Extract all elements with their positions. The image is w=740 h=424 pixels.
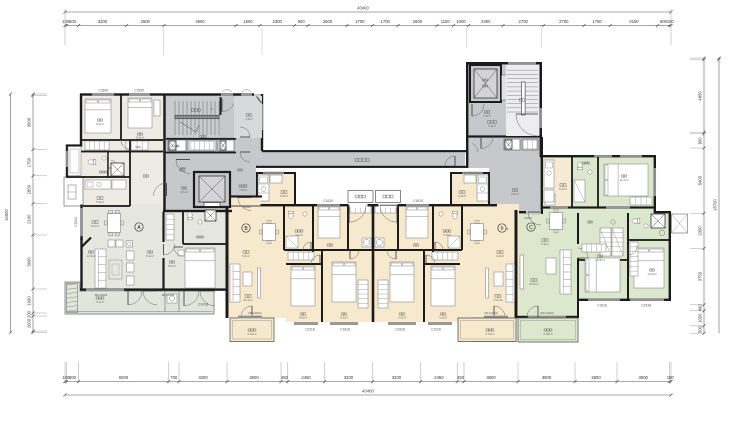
svg-text:8.9m²: 8.9m² [136, 136, 144, 140]
svg-text:1750: 1750 [592, 19, 602, 24]
svg-text:500: 500 [698, 325, 703, 333]
svg-text:3200: 3200 [198, 375, 208, 380]
svg-text:C1818: C1818 [597, 304, 607, 308]
svg-text:12.9m²: 12.9m² [647, 272, 656, 276]
svg-text:5.4m²: 5.4m² [559, 187, 567, 191]
svg-text:9.2m²: 9.2m² [511, 192, 519, 196]
svg-text:9.0m²: 9.0m² [299, 316, 307, 320]
svg-text:2.72m²: 2.72m² [485, 332, 494, 336]
svg-text:6.4m²: 6.4m² [541, 242, 549, 246]
svg-text:1.3m²: 1.3m² [483, 114, 491, 118]
svg-text:MLC2404: MLC2404 [95, 293, 108, 297]
svg-text:11.2m²: 11.2m² [619, 178, 628, 182]
svg-text:MLC2424: MLC2424 [248, 311, 261, 315]
svg-text:5.1m²: 5.1m² [96, 300, 104, 304]
svg-text:1000: 1000 [456, 19, 466, 24]
svg-text:C: C [529, 225, 533, 231]
svg-text:1100: 1100 [441, 19, 451, 24]
svg-text:C2418: C2418 [198, 303, 208, 307]
svg-text:6.4m²: 6.4m² [242, 254, 250, 258]
svg-text:C2404: C2404 [74, 217, 78, 227]
svg-text:4800: 4800 [195, 19, 205, 24]
svg-text:3200: 3200 [392, 375, 402, 380]
svg-text:3200: 3200 [98, 19, 108, 24]
svg-text:5.9m²: 5.9m² [280, 194, 288, 198]
svg-text:6000: 6000 [119, 375, 129, 380]
svg-text:12.9m²: 12.9m² [86, 254, 95, 258]
svg-text:1750: 1750 [27, 157, 32, 167]
svg-text:2700: 2700 [519, 19, 529, 24]
svg-text:6.4m²: 6.4m² [91, 224, 99, 228]
svg-text:21.6m²: 21.6m² [243, 298, 252, 302]
svg-text:3600: 3600 [27, 257, 32, 267]
svg-text:8.2m²: 8.2m² [146, 254, 154, 258]
svg-text:B: B [500, 226, 503, 231]
svg-text:3150: 3150 [629, 19, 639, 24]
svg-text:450: 450 [281, 375, 289, 380]
svg-text:MLC2404: MLC2404 [162, 293, 175, 297]
svg-text:9.0m²: 9.0m² [439, 316, 447, 320]
svg-text:1700: 1700 [381, 19, 391, 24]
svg-text:4.6m²: 4.6m² [245, 117, 253, 121]
svg-text:400: 400 [698, 304, 703, 312]
svg-text:2.19m²: 2.19m² [247, 332, 256, 336]
svg-text:3600: 3600 [249, 375, 259, 380]
svg-text:1600: 1600 [243, 19, 253, 24]
svg-text:2.45m²: 2.45m² [543, 332, 552, 336]
svg-text:F: F [211, 107, 213, 111]
svg-text:C1818: C1818 [395, 328, 405, 332]
svg-text:C2118: C2118 [305, 328, 315, 332]
svg-text:100: 100 [667, 375, 675, 380]
svg-text:7.5m²: 7.5m² [239, 188, 247, 192]
svg-text:1000: 1000 [698, 313, 703, 323]
svg-text:2300: 2300 [273, 19, 283, 24]
svg-text:C1615: C1615 [413, 199, 423, 203]
svg-text:1700: 1700 [355, 19, 365, 24]
svg-text:2300: 2300 [481, 19, 491, 24]
svg-text:3750: 3750 [698, 271, 703, 281]
svg-text:9.2m²: 9.2m² [340, 316, 348, 320]
svg-text:4.0m²: 4.0m² [295, 233, 303, 237]
svg-text:C2418: C2418 [641, 304, 651, 308]
svg-text:2350: 2350 [698, 226, 703, 236]
svg-text:1600: 1600 [27, 296, 32, 306]
svg-text:21.6m²: 21.6m² [493, 298, 502, 302]
svg-text:M10: M10 [180, 166, 186, 170]
svg-text:950: 950 [698, 137, 703, 145]
svg-text:5.3m²: 5.3m² [488, 124, 496, 128]
svg-text:800: 800 [69, 375, 77, 380]
svg-text:C1505: C1505 [98, 89, 108, 93]
svg-text:2600: 2600 [413, 19, 423, 24]
svg-text:6.4m²: 6.4m² [496, 254, 504, 258]
svg-text:4.6m²: 4.6m² [180, 190, 188, 194]
svg-text:9.6m²: 9.6m² [96, 122, 104, 126]
svg-text:18700: 18700 [713, 199, 718, 211]
svg-text:5.9m²: 5.9m² [458, 194, 466, 198]
svg-text:3800: 3800 [542, 375, 552, 380]
svg-text:40400: 40400 [362, 389, 374, 394]
svg-text:40400: 40400 [357, 6, 369, 11]
svg-text:HM10: HM10 [524, 216, 532, 220]
svg-text:9.2m²: 9.2m² [398, 316, 406, 320]
svg-text:10.8m²: 10.8m² [595, 258, 604, 262]
svg-text:3600: 3600 [27, 117, 32, 127]
svg-text:450: 450 [457, 375, 465, 380]
svg-text:HM10: HM10 [243, 205, 251, 209]
svg-text:700: 700 [170, 375, 178, 380]
svg-text:MLC2424: MLC2424 [540, 311, 553, 315]
svg-text:C1615: C1615 [323, 199, 333, 203]
svg-text:3500: 3500 [639, 375, 649, 380]
svg-text:1000: 1000 [27, 318, 32, 328]
svg-text:2100: 2100 [27, 214, 32, 224]
svg-text:MLC2424: MLC2424 [484, 311, 497, 315]
svg-text:16500: 16500 [4, 209, 9, 221]
svg-text:8.2m²: 8.2m² [168, 264, 176, 268]
svg-text:2600: 2600 [323, 19, 333, 24]
svg-text:800: 800 [69, 19, 77, 24]
svg-text:2700: 2700 [559, 19, 569, 24]
svg-text:200: 200 [27, 310, 32, 318]
svg-text:5.3m²: 5.3m² [96, 200, 104, 204]
svg-text:3600: 3600 [486, 375, 496, 380]
svg-text:C1818: C1818 [340, 328, 350, 332]
svg-text:1850: 1850 [27, 184, 32, 194]
svg-text:C1505: C1505 [134, 89, 144, 93]
svg-text:5400: 5400 [698, 175, 703, 185]
svg-text:2450: 2450 [434, 375, 444, 380]
svg-text:100: 100 [667, 19, 675, 24]
svg-text:M09: M09 [135, 145, 141, 149]
svg-text:2800: 2800 [591, 375, 601, 380]
svg-text:4.0m²: 4.0m² [443, 233, 451, 237]
svg-text:2450: 2450 [301, 375, 311, 380]
svg-text:4850: 4850 [698, 91, 703, 101]
svg-text:20.0m²: 20.0m² [529, 282, 538, 286]
svg-text:C2118: C2118 [431, 328, 441, 332]
svg-text:2500: 2500 [141, 19, 151, 24]
svg-text:900: 900 [298, 19, 306, 24]
svg-text:3200: 3200 [344, 375, 354, 380]
